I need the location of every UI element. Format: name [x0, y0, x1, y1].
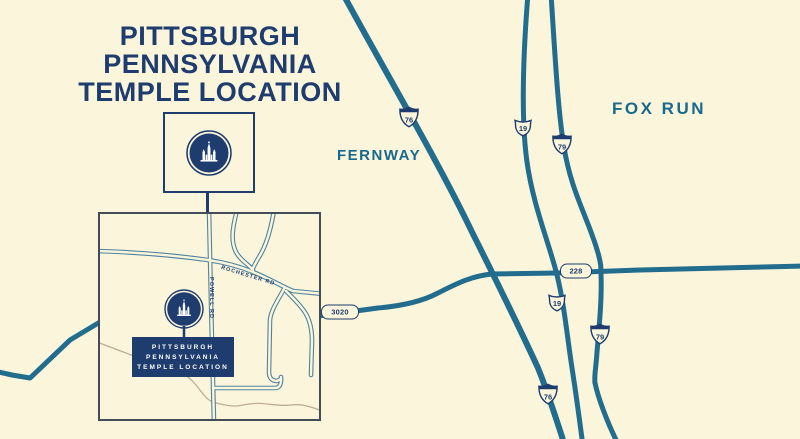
us-19-shield: 19 — [513, 119, 533, 137]
route-number: 76 — [405, 116, 413, 124]
route-number: 19 — [519, 125, 527, 133]
temple-icon — [184, 128, 234, 178]
marker-label-line-3: TEMPLE LOCATION — [137, 363, 229, 372]
us-19-shield: 19 — [547, 294, 567, 312]
title-line-1: PITTSBURGH — [40, 22, 380, 50]
area-label-fernway: FERNWAY — [337, 147, 421, 164]
temple-badge-box — [163, 112, 255, 193]
interstate-79-shield: 79 — [590, 324, 610, 345]
callout-connector-line — [206, 191, 209, 213]
pa-3020-shield: 3020 — [321, 305, 359, 320]
route-number: 79 — [558, 143, 566, 151]
highway-us19-road — [523, 0, 583, 439]
area-label-fox-run: FOX RUN — [612, 99, 706, 119]
route-number: 228 — [569, 267, 582, 275]
temple-location-label-box: PITTSBURGH PENNSYLVANIA TEMPLE LOCATION — [132, 337, 234, 377]
pa-228-shield: 228 — [560, 264, 592, 279]
route-number: 76 — [544, 393, 552, 401]
highway-i79-road — [551, 0, 619, 439]
marker-label-line-2: PENNSYLVANIA — [146, 353, 220, 362]
temple-location-map: PITTSBURGH PENNSYLVANIA TEMPLE LOCATION … — [0, 0, 800, 439]
interstate-76-shield: 76 — [399, 107, 419, 128]
route-number: 19 — [553, 300, 561, 308]
page-title: PITTSBURGH PENNSYLVANIA TEMPLE LOCATION — [40, 22, 380, 106]
inset-map: ROCHESTER RD POWELL RD PITTSBURGH PENNSY… — [98, 212, 321, 421]
title-line-2: PENNSYLVANIA — [40, 50, 380, 78]
marker-label-line-1: PITTSBURGH — [152, 343, 214, 352]
interstate-79-shield: 79 — [552, 134, 572, 155]
route-3020-road — [0, 322, 100, 378]
road-label-powell: POWELL RD — [208, 277, 214, 319]
route-number: 79 — [596, 333, 604, 341]
temple-marker-icon — [165, 290, 203, 328]
interstate-76-shield: 76 — [538, 384, 558, 405]
title-line-3: TEMPLE LOCATION — [40, 78, 380, 106]
route-number: 3020 — [331, 308, 349, 316]
